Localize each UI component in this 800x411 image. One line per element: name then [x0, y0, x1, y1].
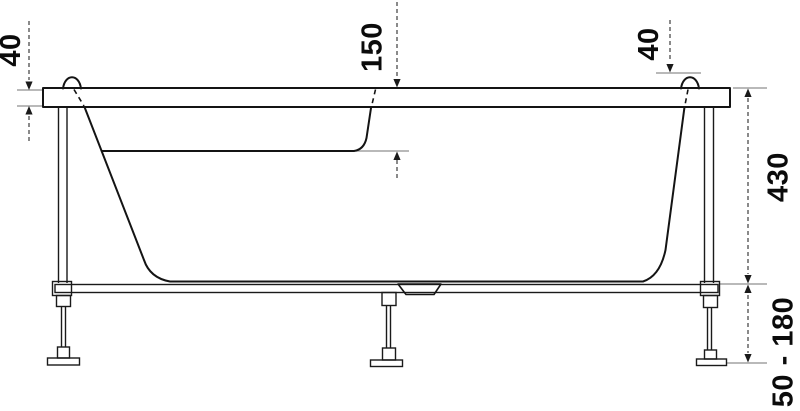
dimension-label-bottom-right: 50 - 180 — [769, 296, 799, 409]
tub-rim — [43, 88, 730, 107]
drawing-canvas — [0, 0, 800, 411]
left-hanger-hook — [63, 77, 81, 88]
hidden-edges — [74, 90, 688, 107]
adjustable-legs — [48, 293, 727, 367]
dimension-label-top-center: 150 — [358, 21, 388, 74]
inner-ledge-line — [102, 108, 371, 151]
tub-inner-shell — [85, 107, 685, 282]
dimension-arrowheads — [25, 64, 751, 363]
bathtub-outline — [43, 77, 730, 294]
right-hanger-hook — [681, 77, 699, 88]
bathtub-side-elevation-drawing: 40 150 40 430 50 - 180 — [0, 0, 800, 411]
dimension-extension-lines — [17, 73, 767, 363]
dimension-label-right: 430 — [764, 151, 794, 204]
dimension-label-top-left: 40 — [0, 32, 26, 68]
support-frame — [53, 107, 720, 296]
dimension-label-top-right: 40 — [634, 26, 664, 62]
